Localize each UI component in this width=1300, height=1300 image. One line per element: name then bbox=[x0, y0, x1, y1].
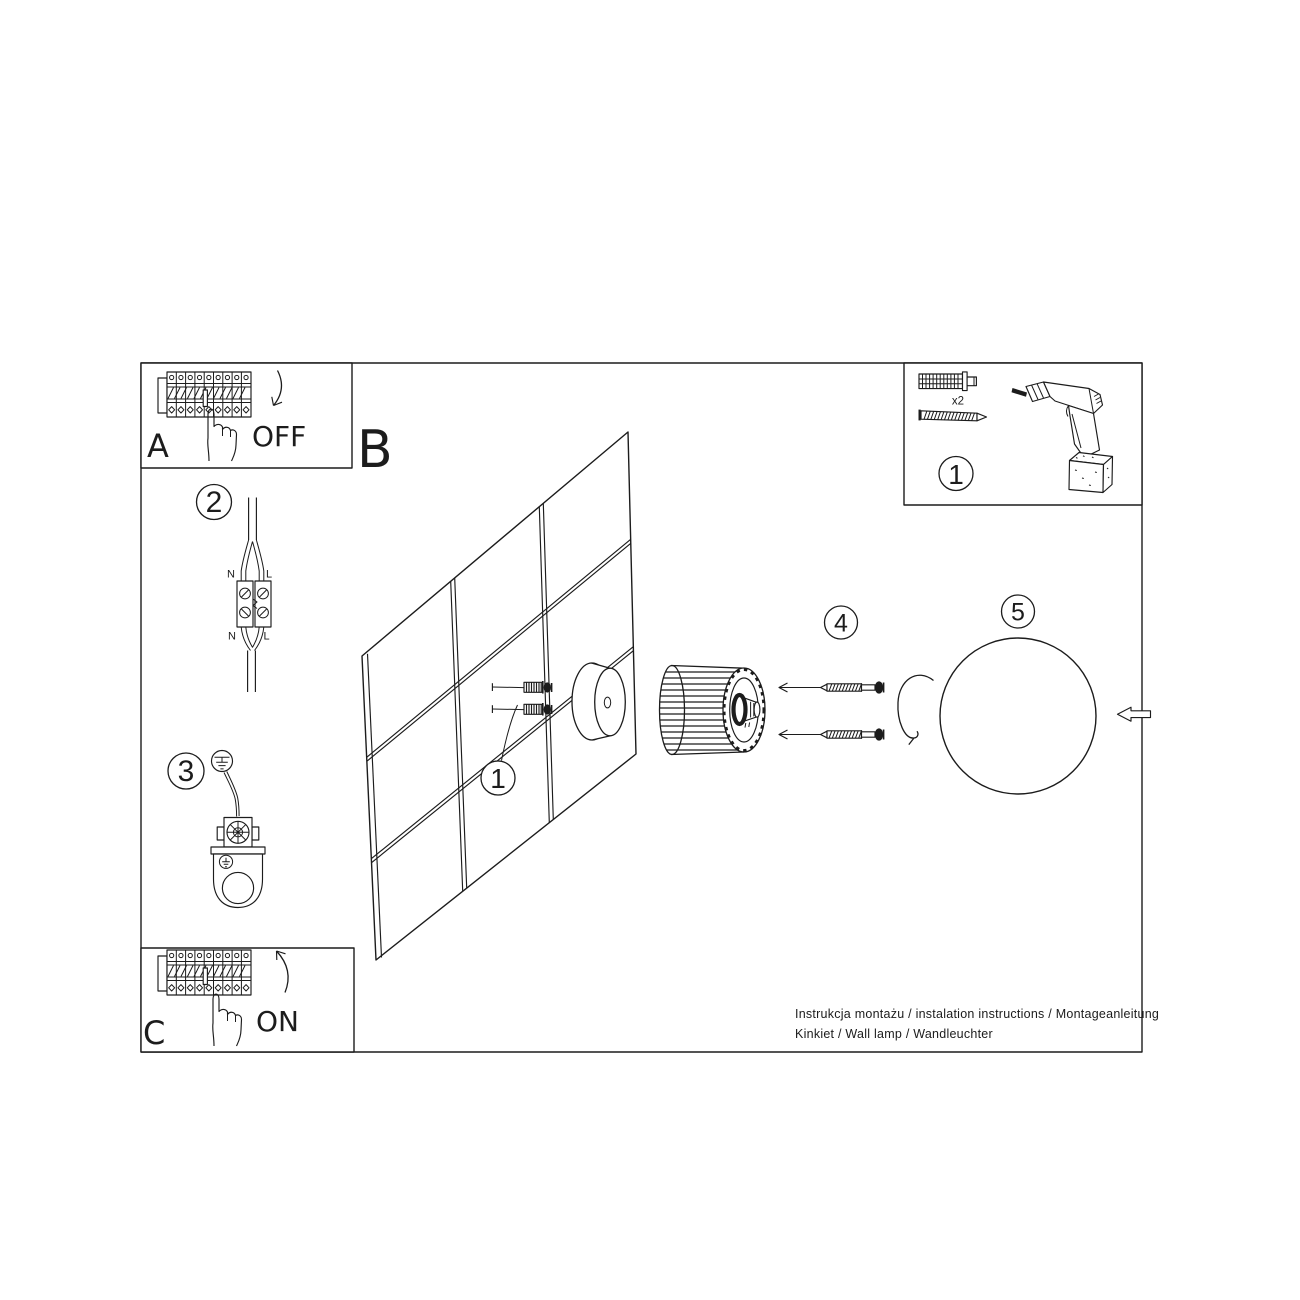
live-label-bottom: L bbox=[263, 631, 269, 642]
power-on-label: ON bbox=[256, 1008, 299, 1036]
wall-plug-quantity-label: x2 bbox=[952, 396, 964, 408]
neutral-label-top: N bbox=[227, 569, 235, 580]
step-5-badge: 5 bbox=[1011, 600, 1025, 625]
footer-title-line: Instrukcja montażu / instalation instruc… bbox=[795, 1007, 1159, 1021]
breaker-panel-c bbox=[158, 950, 251, 995]
live-label-top: L bbox=[266, 569, 272, 580]
ground-symbol-icon bbox=[212, 751, 233, 772]
footer-product-line: Kinkiet / Wall lamp / Wandleuchter bbox=[795, 1027, 993, 1041]
section-b-label: B bbox=[357, 424, 393, 476]
breaker-panel-a bbox=[158, 372, 251, 417]
lamp-body bbox=[660, 666, 766, 755]
section-c-label: C bbox=[143, 1017, 165, 1049]
step-4-screws bbox=[779, 606, 884, 741]
gasket-ring-icon bbox=[898, 675, 934, 744]
wall-mounting-plate bbox=[572, 663, 625, 740]
terminal-block bbox=[217, 818, 259, 848]
step-3-badge: 3 bbox=[178, 757, 195, 787]
instruction-sheet: A OFF B C ON 2 3 1 4 5 1 N L N L x2 Inst… bbox=[0, 0, 1300, 1300]
neutral-label-bottom: N bbox=[228, 631, 236, 642]
power-off-label: OFF bbox=[252, 423, 306, 451]
section-a-label: A bbox=[147, 430, 169, 462]
insert-direction-arrow-icon bbox=[1118, 707, 1151, 721]
step-1-badge-toolbox: 1 bbox=[948, 461, 964, 489]
diagram-artwork bbox=[0, 0, 1300, 1300]
step-2-badge: 2 bbox=[206, 488, 223, 518]
mounting-bracket bbox=[211, 847, 265, 908]
step-1-badge-wall: 1 bbox=[490, 765, 506, 793]
step-4-badge: 4 bbox=[834, 611, 848, 636]
